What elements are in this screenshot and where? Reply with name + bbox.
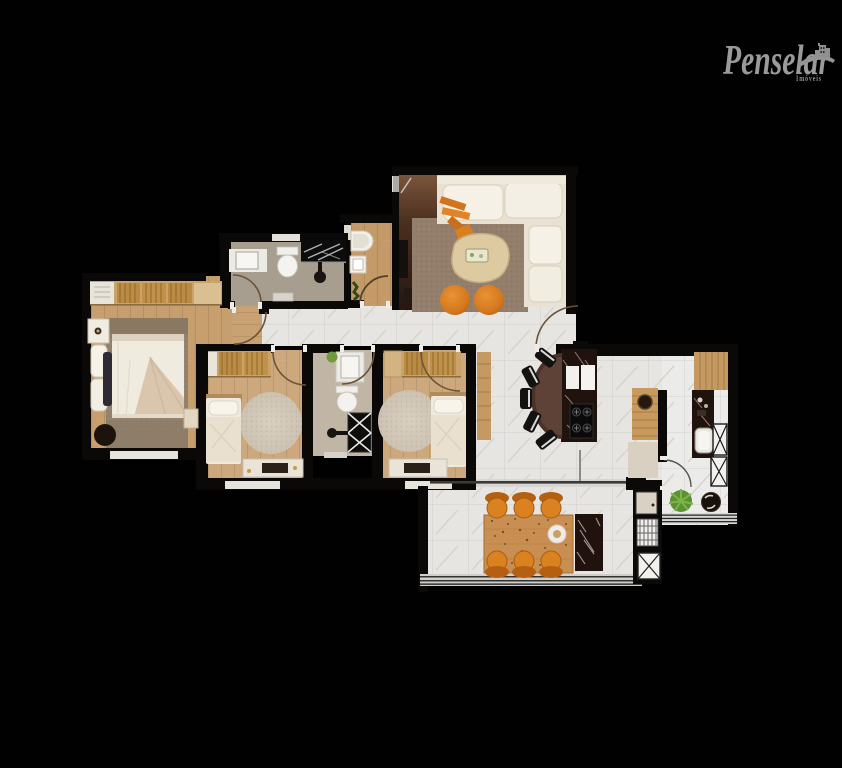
svg-text:Imóveis: Imóveis [796,73,822,83]
